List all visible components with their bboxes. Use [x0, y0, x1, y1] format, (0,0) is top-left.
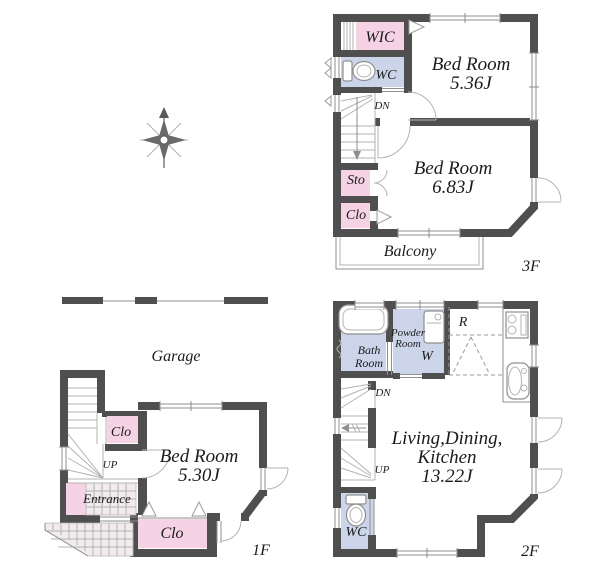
- floor-plan-1f: Garage Clo UP Bed Room 5.30J Entrance Cl…: [45, 297, 288, 559]
- floor-plan-drawing: WIC WC DN Bed Room 5.36J Bed Room 6.83J …: [0, 0, 600, 571]
- label-washer: W: [421, 349, 434, 364]
- floor-plan-page: WIC WC DN Bed Room 5.36J Bed Room 6.83J …: [0, 0, 600, 571]
- label-up-1f: UP: [103, 459, 118, 471]
- label-garage: Garage: [152, 348, 201, 365]
- approach-tiles: [45, 523, 133, 556]
- floor-plan-2f: Bath Room Powder Room W R DN UP Living,D…: [333, 300, 562, 560]
- label-powder-line2: Room: [394, 338, 421, 350]
- label-dn-2f: DN: [374, 387, 391, 399]
- 1f-entry-door: [217, 521, 241, 543]
- label-ldk-line1: Living,Dining,: [391, 428, 503, 449]
- washer-icon: [424, 311, 444, 343]
- label-ldk-line2: Kitchen: [416, 447, 476, 468]
- label-up-2f: UP: [375, 464, 390, 476]
- floor-plan-3f: WIC WC DN Bed Room 5.36J Bed Room 6.83J …: [325, 13, 561, 275]
- toilet-icon-2f: [346, 495, 366, 526]
- label-bedroom-b-name: Bed Room: [414, 158, 493, 179]
- label-bath-line1: Bath: [358, 343, 381, 357]
- label-floor-1f: 1F: [252, 542, 270, 559]
- label-bedroom-a-name: Bed Room: [432, 54, 511, 75]
- label-bedroom-a-area: 5.36J: [450, 73, 493, 94]
- label-bedroom-b-area: 6.83J: [432, 177, 475, 198]
- label-entrance: Entrance: [82, 491, 131, 506]
- garage-front-wall: [62, 297, 268, 304]
- label-bedroom-1f-area: 5.30J: [178, 465, 221, 486]
- label-clo-3f: Clo: [346, 208, 366, 223]
- label-bath-line2: Room: [354, 356, 383, 370]
- label-sto: Sto: [347, 173, 365, 188]
- label-clo-lower: Clo: [160, 525, 183, 542]
- label-wc-2f: WC: [346, 525, 368, 540]
- label-clo-upper: Clo: [111, 425, 131, 440]
- 3f-wic-shelf: [341, 22, 356, 50]
- label-wc-3f: WC: [376, 68, 398, 83]
- compass-icon: [140, 107, 188, 168]
- label-fridge: R: [458, 315, 468, 330]
- label-bedroom-1f-name: Bed Room: [160, 446, 239, 467]
- label-wic: WIC: [365, 29, 395, 46]
- label-ldk-area: 13.22J: [421, 466, 474, 487]
- label-dn-3f: DN: [373, 100, 390, 112]
- clo-folding-door-marker: [192, 502, 206, 516]
- label-balcony: Balcony: [384, 243, 437, 260]
- label-floor-2f: 2F: [521, 543, 539, 560]
- label-floor-3f: 3F: [521, 258, 540, 275]
- toilet-icon-3f: [343, 61, 375, 81]
